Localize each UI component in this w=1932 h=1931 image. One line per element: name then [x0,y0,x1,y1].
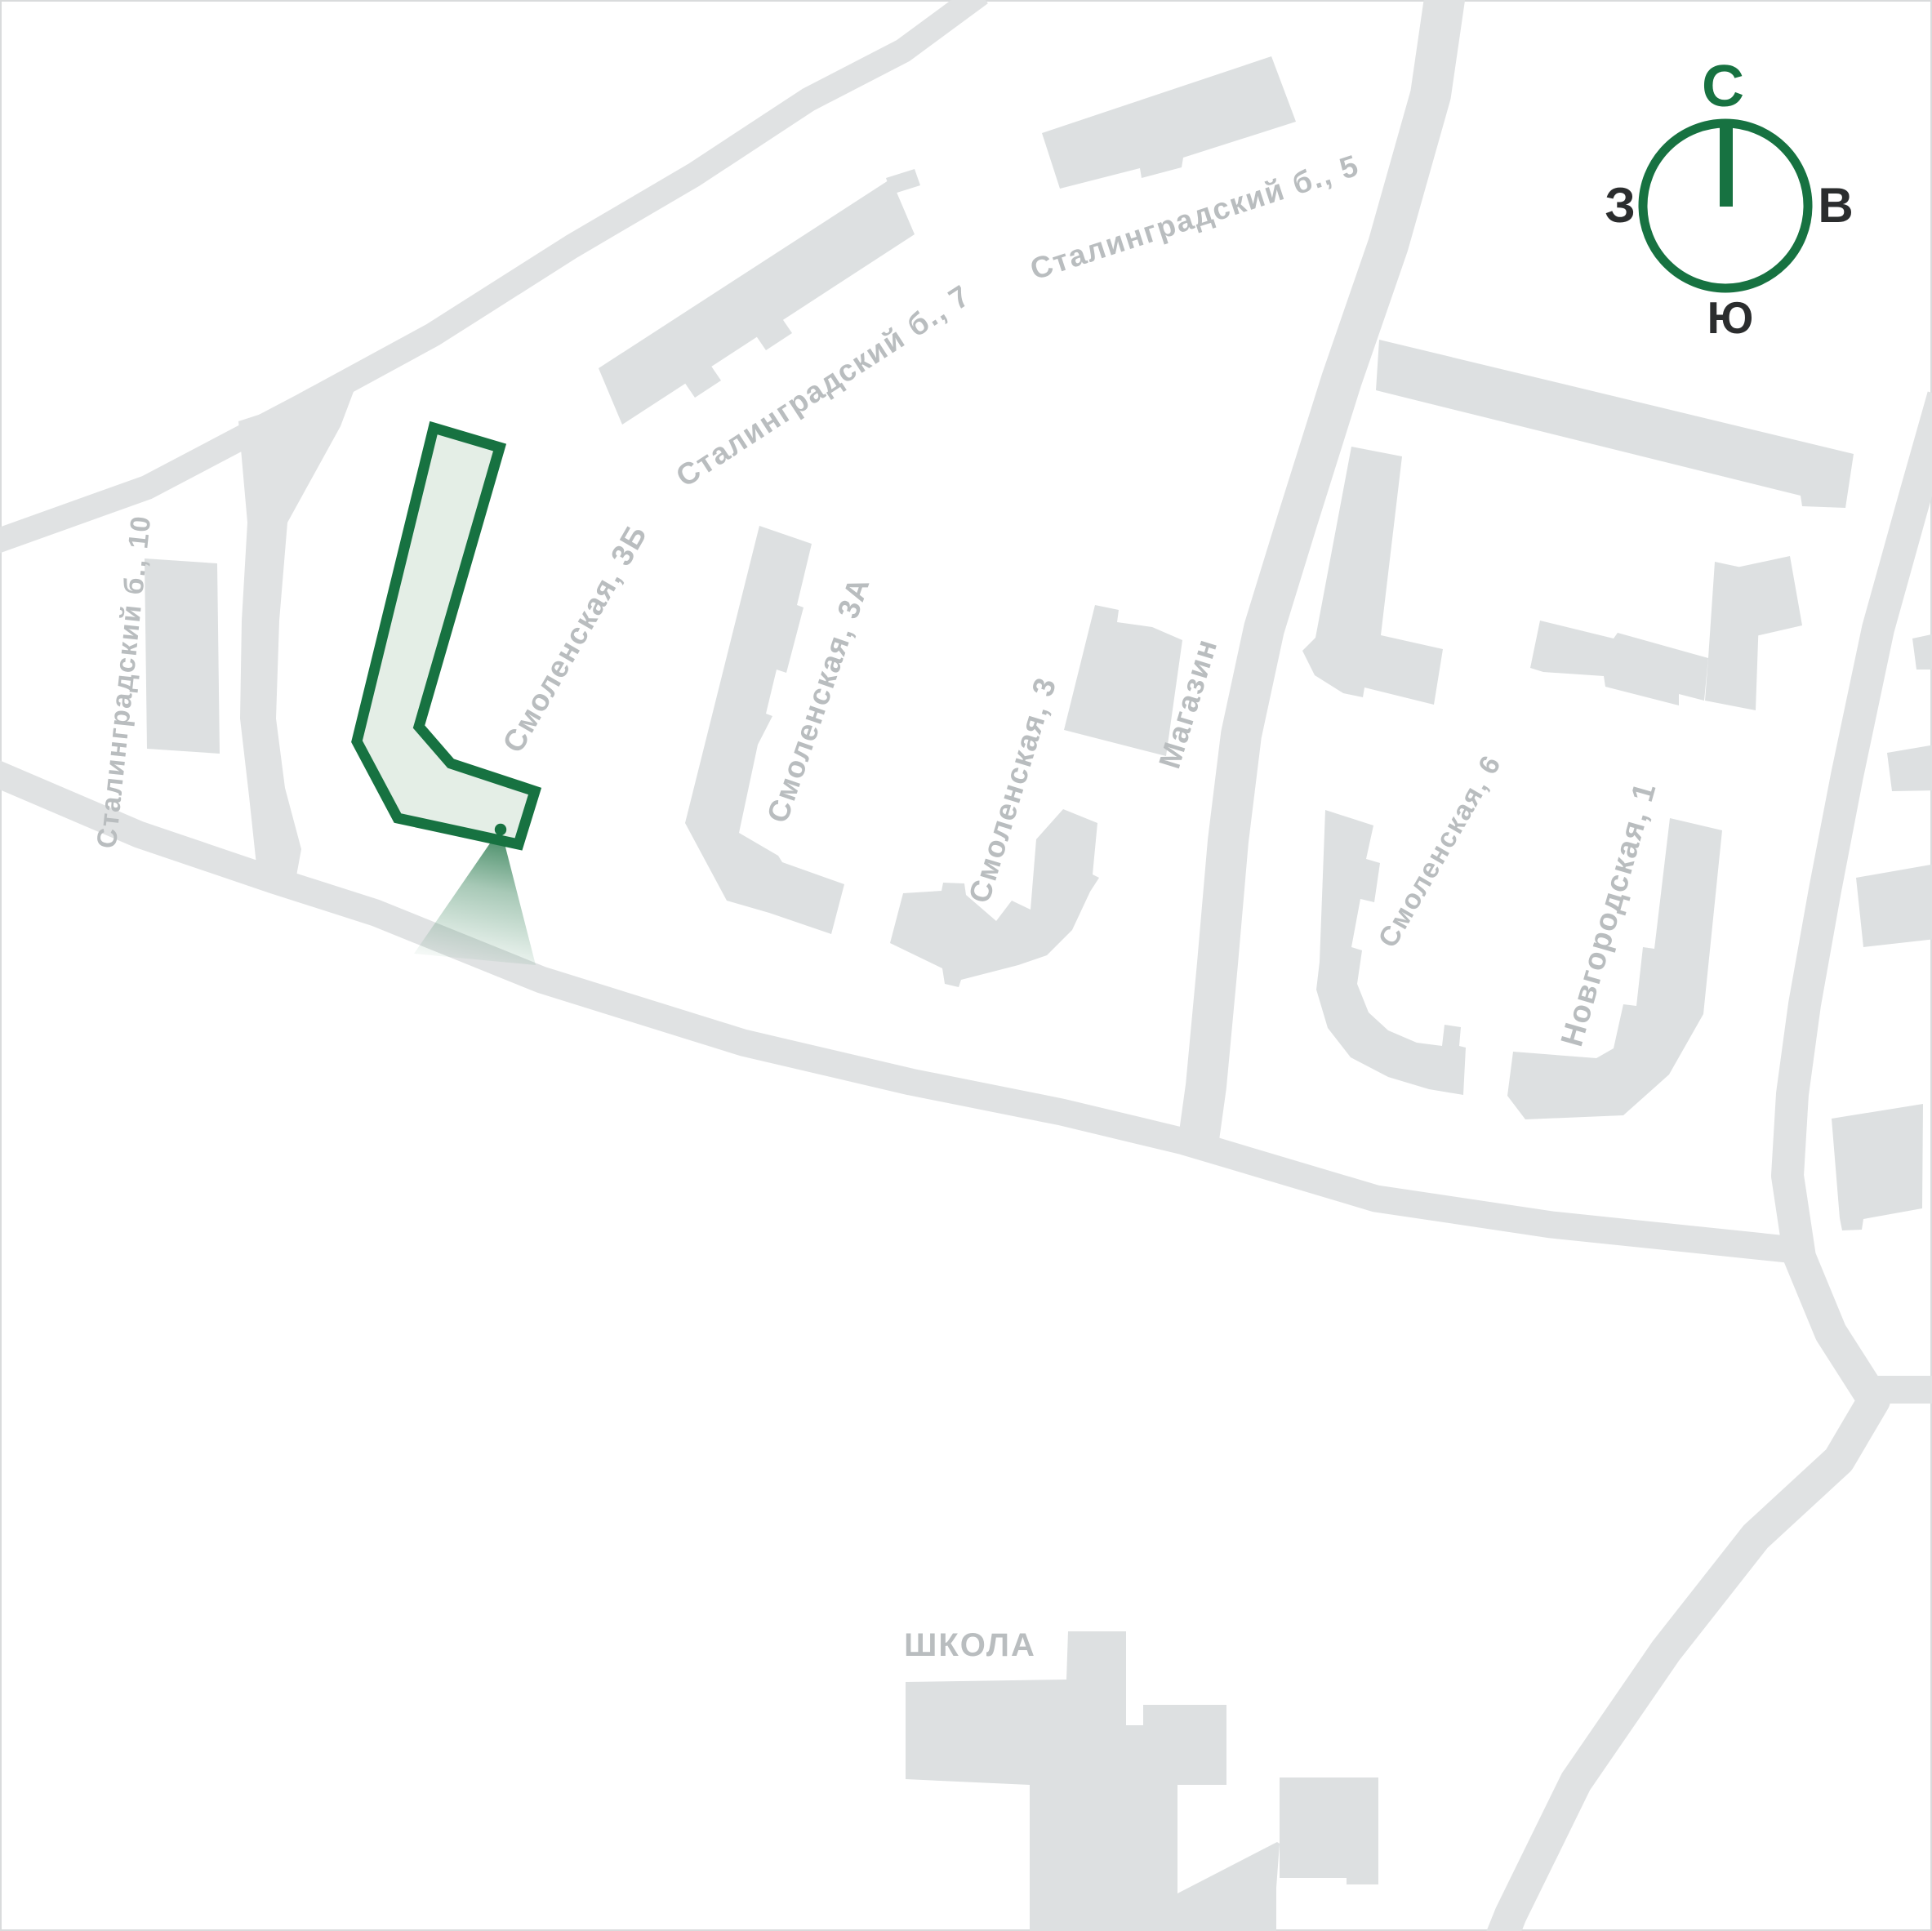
svg-text:З: З [1605,178,1636,233]
svg-text:ШКОЛА: ШКОЛА [904,1627,1036,1663]
svg-text:В: В [1818,178,1853,233]
svg-text:С: С [1702,54,1744,119]
svg-text:Ю: Ю [1707,292,1754,343]
